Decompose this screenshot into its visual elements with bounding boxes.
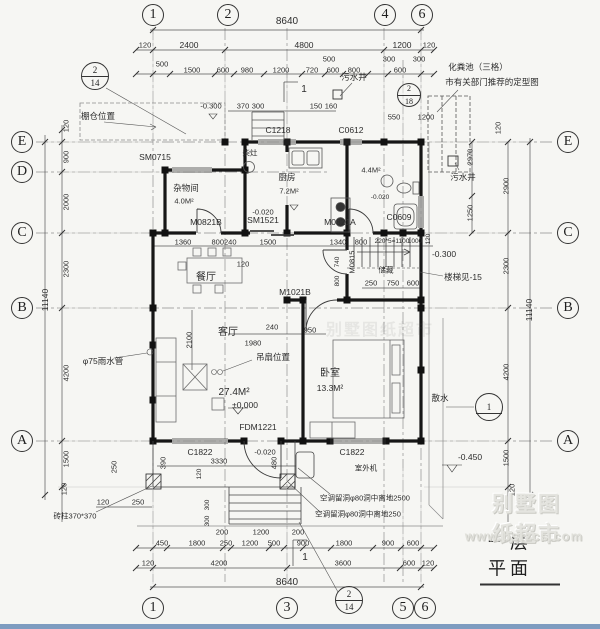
dim-porch-120b: 120 [97,498,110,506]
dim-living-240: 240 [266,323,279,331]
dim-hall-800: 800 [335,276,342,287]
detail-ref-2-14-top: 214 [81,62,109,90]
dim-left-5: 1500 [62,451,70,468]
grid-bubble-right-E: E [557,131,579,153]
dim-bottom1-4: 500 [268,539,281,547]
dim-top3-0: 500 [156,60,169,68]
window-tag-c1218: C1218 [265,126,290,135]
dim-stair-750: 750 [387,279,400,287]
dim-living-2100: 2100 [185,332,193,349]
dim-bottom2-1: 4200 [211,559,228,567]
dim-living-120: 120 [237,260,250,268]
rear-steps [252,82,307,566]
dim-stair-120: 120 [426,234,433,245]
dim-left-0: 120 [62,120,70,133]
dim-stair-250: 250 [365,279,378,287]
window-tag-c0609: C0609 [386,213,411,222]
dim-overall-bottom: 8640 [276,578,298,588]
dim-left-2: 2000 [62,194,70,211]
dim-left-4: 4200 [62,365,70,382]
grid-bubble-bottom-6: 6 [414,597,436,619]
dim-porch-390: 390 [159,457,167,470]
step-section-mark-top: 1 [301,85,307,95]
grid-bubble-bottom-1: 1 [142,597,164,619]
septic-note-line1: 化粪池（三格） [448,63,508,72]
floor-plan-sheet: 1 2 4 6 1 3 5 6 E D C B A E C B A 214 21… [0,0,600,629]
dim-bottom1-6: 1800 [336,539,353,547]
room-living-area: 27.4M² [218,388,249,398]
dim-top3-4: 1200 [273,66,290,74]
dim-bottom1-5: 900 [297,539,310,547]
room-kitchen-area: 7.2M² [279,187,298,195]
dim-rear-160: 160 [325,102,338,110]
dim-porch-120a: 120 [197,469,204,480]
grid-bubble-left-E: E [11,131,33,153]
dim-right-1: 2970 [466,149,474,166]
room-storage-area: 4.0M² [174,197,193,205]
dim-top3-8: 600 [394,66,407,74]
watermark-faint: 别墅图纸超市 [326,316,434,340]
room-bedroom-area: 13.3M² [317,384,343,393]
bottom-blue-strip [0,624,600,629]
dim-steps-200a: 200 [216,528,229,536]
door-tag-m1021b: M1021B [279,288,311,297]
sewage-well-note-right: 污水井 [450,173,476,182]
dim-right-0: 120 [494,122,502,135]
dimension-lines [45,30,530,587]
ac-hole-note-upper: 空调留洞φ80洞中离地2500 [320,494,410,502]
window-tag-c1822-left: C1822 [187,448,212,457]
dim-bottom1-8: 600 [407,539,420,547]
grid-bubble-right-C: C [557,222,579,244]
dim-living-1980: 1980 [245,339,262,347]
dim-top3b-2: 300 [413,55,426,63]
grid-bubble-top-2: 2 [217,4,239,26]
dim-rowC-2: 1500 [260,238,277,246]
dim-left-1: 900 [62,151,70,164]
ac-hole-note-lower: 空调留洞φ80洞中离地250 [315,510,401,518]
door-tag-m0821a: M0821A [324,218,356,227]
extension-lines [48,34,532,584]
elev-rear: -0.300 [200,102,221,110]
stair-note: 楼梯见-15 [444,273,482,282]
elev-bath: -0.020 [371,195,389,202]
dim-right-4: 2300 [502,258,510,275]
dim-top2-3: 1200 [393,41,412,50]
elev-stair: -0.300 [432,250,456,259]
dim-rear-550: 550 [388,113,401,121]
dim-rowC-6: 1000 [408,239,422,246]
dim-top2-4: 120 [423,41,436,49]
step-section-mark-bottom: 1 [302,553,308,563]
dim-stair-treads: 220*5=1100 [375,239,410,246]
dim-steps-1200: 1200 [253,528,270,536]
dim-bottom1-0: 450 [156,539,169,547]
window-tag-sm0715: SM0715 [139,153,171,162]
dim-top2-2: 4800 [295,41,314,50]
detail-ref-2-14-bottom: 214 [335,586,363,614]
dim-living-950: 950 [304,326,317,334]
grid-bubble-right-A: A [557,430,579,452]
dim-rear-1200: 1200 [418,113,435,121]
septic-note-line2: 市有关部门推荐的定型图 [445,78,539,87]
grid-bubble-top-1: 1 [142,4,164,26]
septic-tank [428,96,470,172]
dim-bottom1-7: 900 [382,539,395,547]
grid-bubble-left-D: D [11,161,33,183]
grid-bubble-left-A: A [11,430,33,452]
dim-bottom2-3: 600 [403,559,416,567]
dim-bottom2-4: 120 [422,559,435,567]
apron-note: 散水 [431,394,448,403]
dim-porch-300a: 300 [205,500,212,511]
dim-rowC-3: 1340 [330,238,347,246]
dim-top3-3: 980 [241,66,254,74]
sewage-well-note-top: 污水井 [341,73,367,82]
dim-bottom1-3: 1200 [242,539,259,547]
door-tag-sm1521: SM1521 [247,216,279,225]
grid-bubble-right-B: B [557,297,579,319]
dim-top2-1: 2400 [180,41,199,50]
dim-rear-370: 370 [237,102,250,110]
dim-rowC-0: 1360 [175,238,192,246]
dim-top3b-0: 500 [323,55,336,63]
elev-porch: -0.020 [254,448,275,456]
room-bath-area: 4.4M² [361,166,380,174]
grid-bubble-top-4: 4 [374,4,396,26]
dim-right-6: 1500 [502,450,510,467]
dim-top2-0: 120 [139,41,152,49]
dim-left-total: 11140 [41,289,50,311]
grid-bubble-top-6: 6 [411,4,433,26]
dim-top3-6: 600 [327,66,340,74]
dim-right-5: 4200 [502,364,510,381]
dim-bottom1-1: 1800 [189,539,206,547]
room-kitchen-name: 厨房 [278,173,295,182]
grid-bubble-left-C: C [11,222,33,244]
stair-closet-label: 储藏 [379,266,394,274]
dim-stair-600: 600 [407,279,420,287]
ceiling-fan-label: 吊扇位置 [256,353,290,362]
door-tag-m0821b: M0821B [190,218,222,227]
room-dining-name: 餐厅 [196,273,216,283]
dim-overall-top: 8640 [276,17,298,27]
dim-porch-300b: 300 [205,516,212,527]
window-tag-c1822-right: C1822 [339,448,364,457]
room-bedroom-name: 卧室 [320,369,340,379]
grid-bubble-bottom-5: 5 [392,597,414,619]
dim-right-total: 11140 [525,299,534,321]
detail-ref-2-18: 218 [397,83,421,107]
rain-pipe-note: φ75雨水管 [83,357,123,366]
dim-left-3: 2300 [62,261,70,278]
watermark-url: www.bstzcs.com [465,529,583,544]
window-tag-c0612: C0612 [338,126,363,135]
ac-outdoor-unit-note: 室外机 [355,464,378,472]
door-tag-m0815: M0815 [348,251,356,274]
dim-rowC-4: 800 [355,238,368,246]
door-tag-fdm1221: FDM1221 [239,423,276,432]
dim-left-extra-250: 250 [110,461,118,474]
dim-rear-300: 300 [252,102,265,110]
elev-outside: -0.450 [458,453,482,462]
detail-ref-apron: 1 [475,393,503,421]
kitchen-stove-label: 柴灶 [243,149,258,157]
dim-rowC-1: 800240 [211,238,236,246]
canopy-note: 棚仓位置 [81,112,115,121]
dimension-ticks [42,27,533,590]
grid-bubble-bottom-3: 3 [276,597,298,619]
dim-steps-200b: 200 [292,528,305,536]
dim-porch-3330: 3330 [211,457,228,465]
dim-bottom2-2: 3600 [335,559,352,567]
dim-left-extra-120: 120 [60,483,68,496]
dim-top3-1: 1500 [184,66,201,74]
room-storage-name: 杂物间 [173,184,199,193]
dim-top3b-1: 300 [383,55,396,63]
dim-right-3: 1250 [466,205,474,222]
dim-top3-2: 600 [217,66,230,74]
grid-bubble-left-B: B [11,297,33,319]
dim-rear-150: 150 [310,102,323,110]
dim-bottom2-0: 120 [142,559,155,567]
dim-bottom1-2: 250 [220,539,233,547]
dim-porch-480: 480 [270,457,278,470]
elev-living: ±0.000 [232,401,258,410]
dim-top3-5: 720 [306,66,319,74]
brick-column-note: 砖柱370*370 [54,512,97,520]
dim-porch-250: 250 [132,498,145,506]
dim-right-2: 2900 [502,178,510,195]
room-living-name: 客厅 [218,328,238,338]
dim-hall-740: 740 [335,257,342,268]
